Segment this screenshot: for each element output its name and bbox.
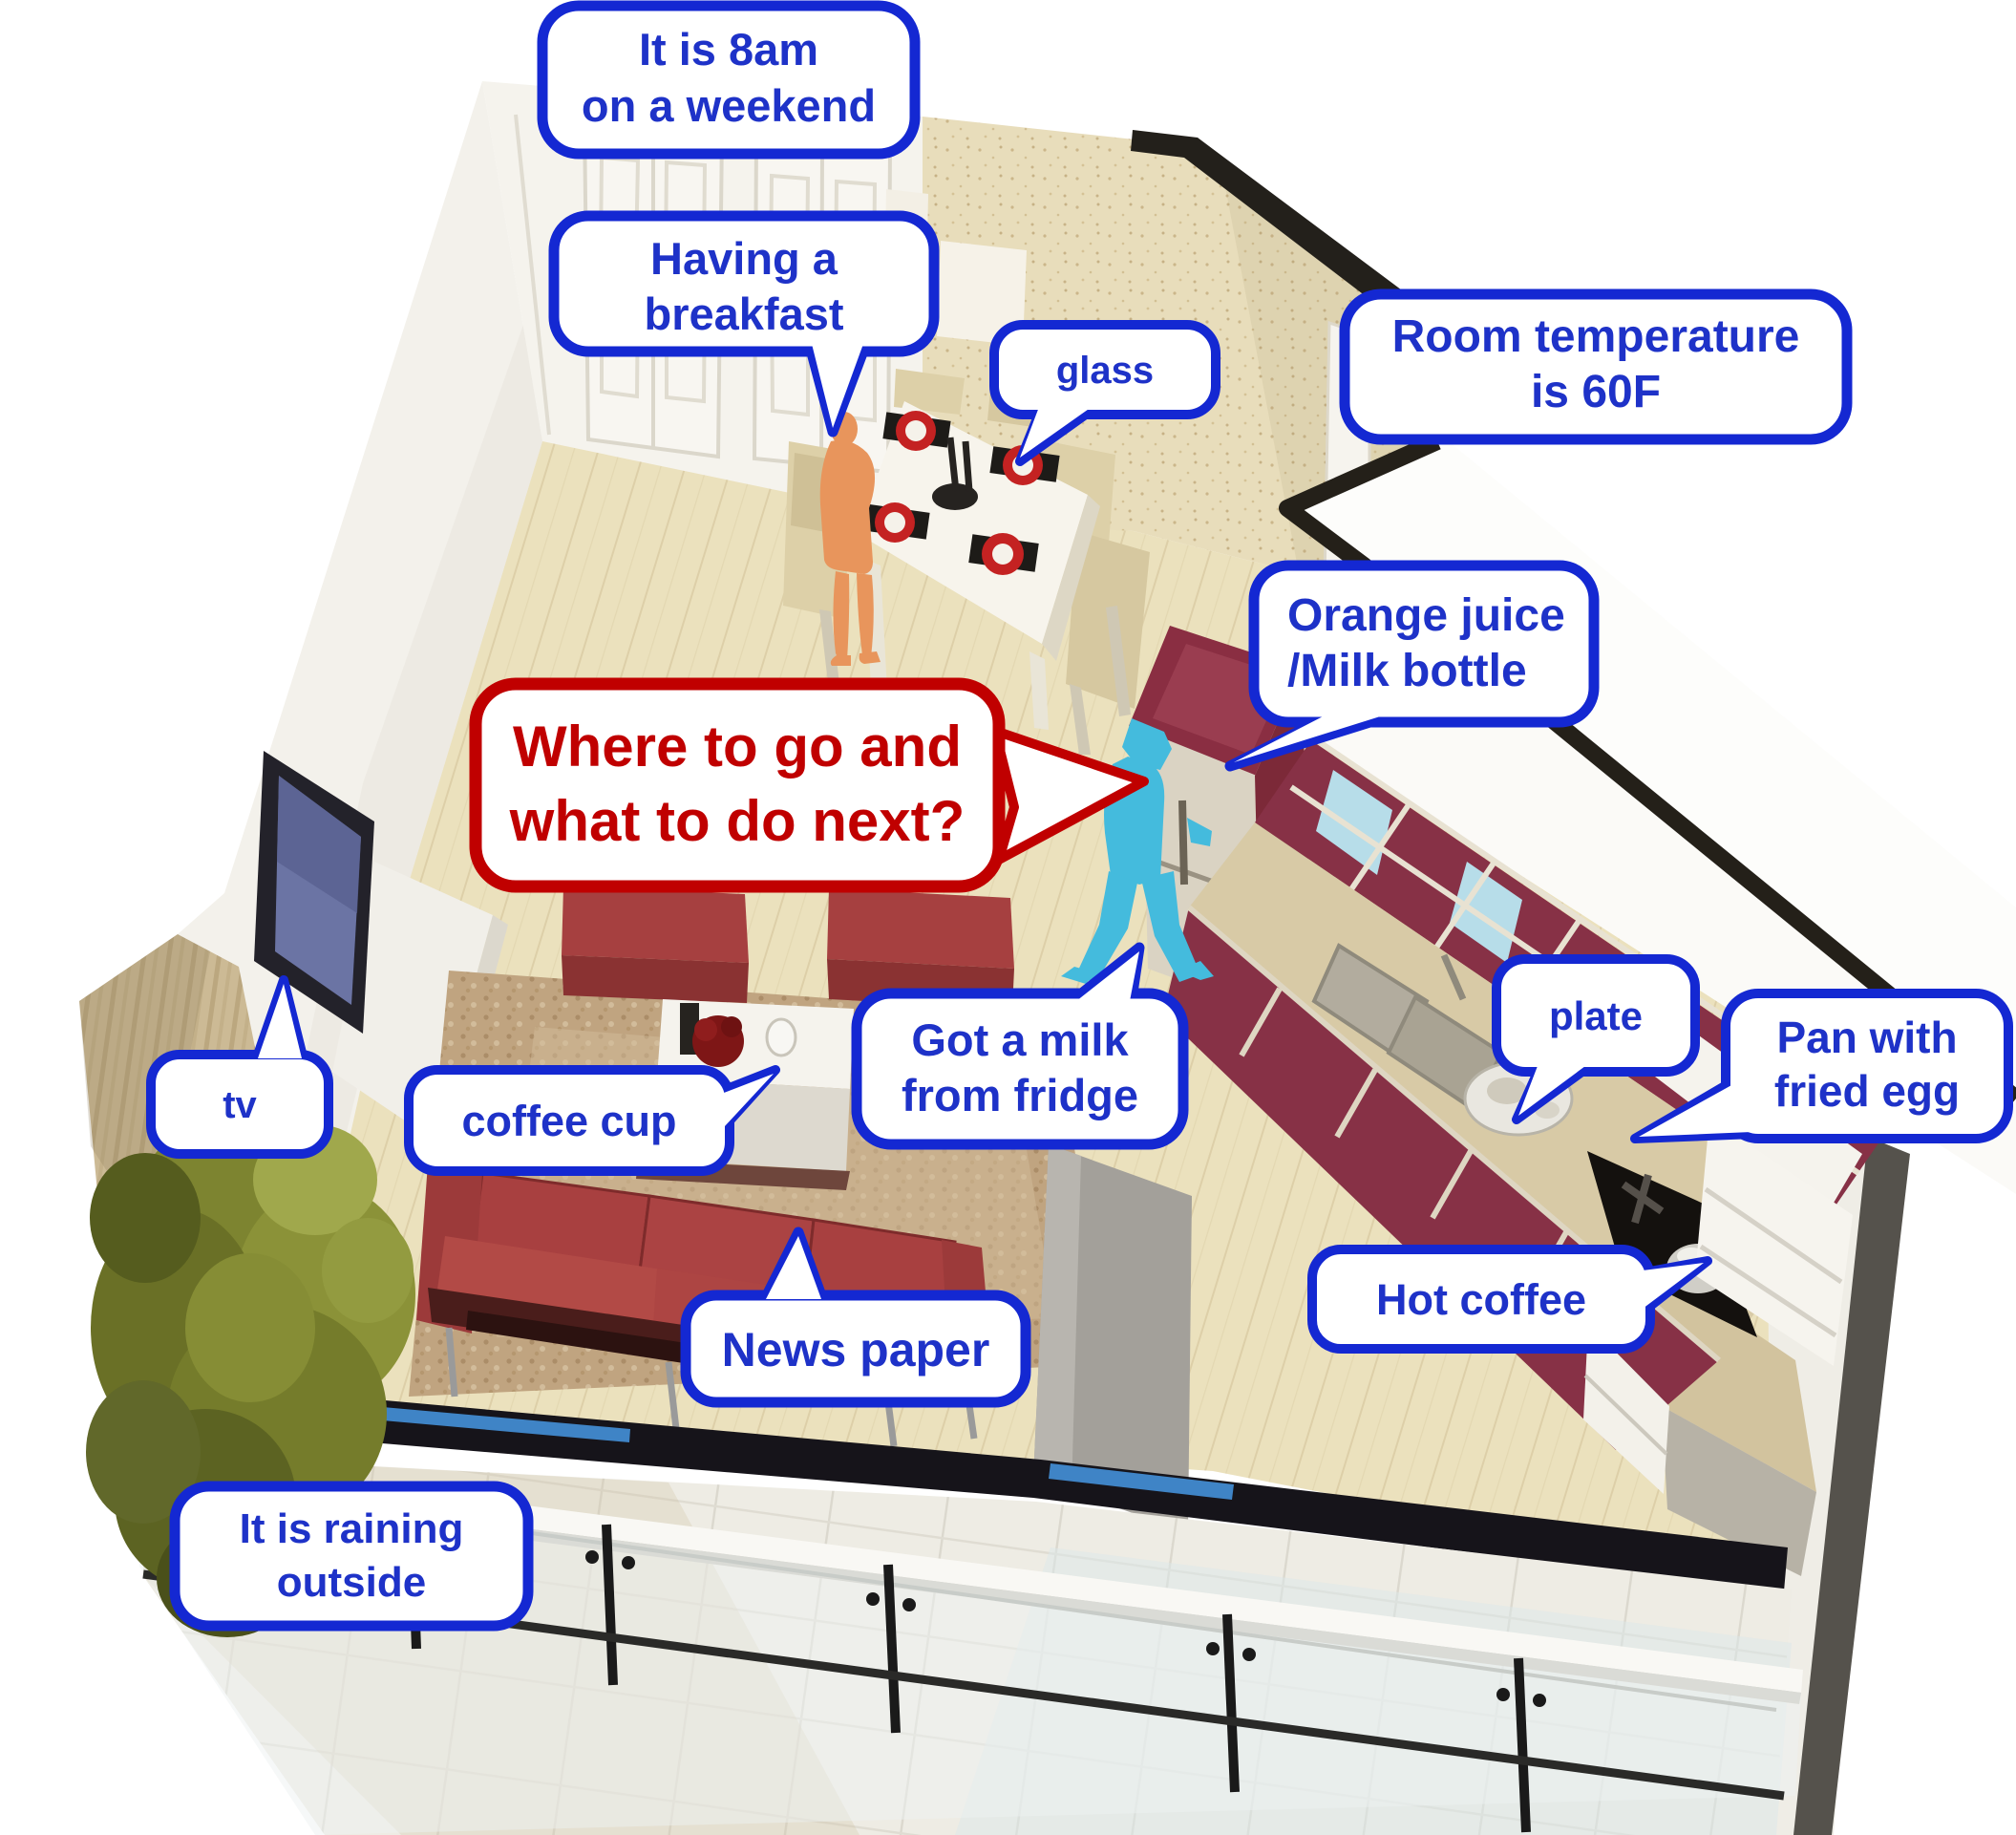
- svg-text:Room temperature: Room temperature: [1392, 311, 1800, 362]
- svg-text:/Milk bottle: /Milk bottle: [1287, 646, 1527, 696]
- svg-text:Pan with: Pan with: [1776, 1013, 1957, 1062]
- svg-text:News paper: News paper: [722, 1323, 990, 1376]
- svg-text:is 60F: is 60F: [1531, 367, 1661, 417]
- svg-text:breakfast: breakfast: [645, 288, 844, 339]
- svg-text:coffee cup: coffee cup: [461, 1097, 676, 1145]
- svg-text:Hot coffee: Hot coffee: [1376, 1275, 1586, 1324]
- svg-text:from fridge: from fridge: [902, 1070, 1138, 1120]
- svg-text:fried egg: fried egg: [1774, 1066, 1960, 1116]
- svg-text:Got a milk: Got a milk: [911, 1014, 1129, 1065]
- svg-text:what to do next?: what to do next?: [509, 789, 966, 853]
- svg-text:glass: glass: [1056, 350, 1154, 392]
- svg-text:Orange juice: Orange juice: [1287, 590, 1565, 641]
- svg-text:Where to go and: Where to go and: [513, 715, 962, 779]
- svg-text:It is raining: It is raining: [240, 1505, 464, 1552]
- svg-text:outside: outside: [277, 1559, 426, 1606]
- svg-text:It is 8am: It is 8am: [639, 24, 818, 75]
- svg-text:plate: plate: [1549, 993, 1643, 1038]
- svg-text:Having a: Having a: [650, 233, 838, 284]
- svg-text:tv: tv: [223, 1084, 257, 1126]
- svg-text:on a weekend: on a weekend: [582, 80, 876, 131]
